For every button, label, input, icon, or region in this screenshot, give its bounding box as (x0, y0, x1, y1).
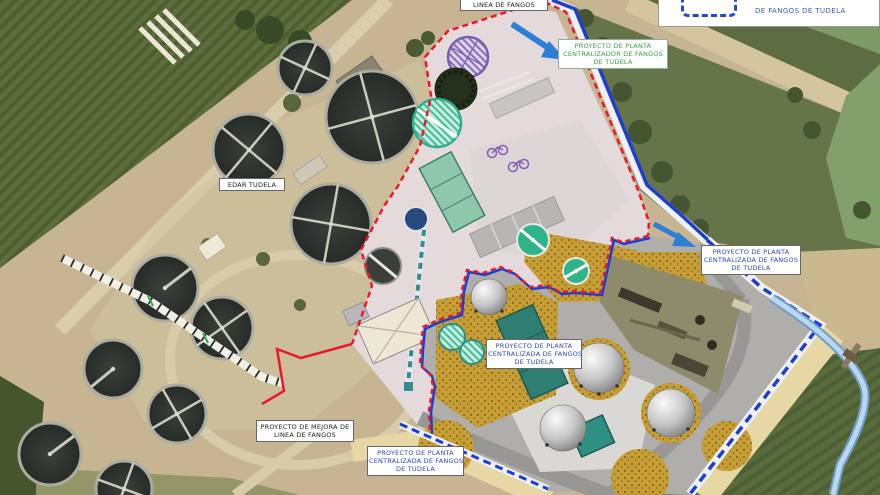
clarifier-tank (563, 258, 589, 284)
label-plant-project-bottom: PROYECTO DE PLANTA CENTRALIZADA DE FANGO… (367, 446, 464, 476)
buffer-tank-navy (404, 207, 428, 231)
label-edar-tudela: EDAR TUDELA (219, 178, 285, 191)
label-plant-project-center: PROYECTO DE PLANTA CENTRALIZADA DE FANGO… (486, 339, 582, 369)
label-plant-project-northeast: PROYECTO DE PLANTA CENTRALIZADOR DE FANG… (558, 39, 668, 69)
aerial-site-map: LINEA DE FANGOS DE FANGOS DE TUDELA PROY… (0, 0, 880, 495)
circular-tank (19, 423, 81, 485)
clarifier-tank (517, 224, 549, 256)
label-linea-de-fangos: LINEA DE FANGOS (460, 0, 548, 11)
legend-box: DE FANGOS DE TUDELA (658, 0, 880, 27)
thickener-tank (365, 248, 401, 284)
circular-tank (84, 340, 142, 398)
dashed-rectangle-icon (681, 0, 737, 17)
label-mejora-linea-fangos: PROYECTO DE MEJORA DE LINEA DE FANGOS (256, 420, 354, 442)
label-plant-project-right: PROYECTO DE PLANTA CENTRALIZADA DE FANGO… (701, 245, 801, 275)
legend-label: DE FANGOS DE TUDELA (755, 7, 846, 15)
